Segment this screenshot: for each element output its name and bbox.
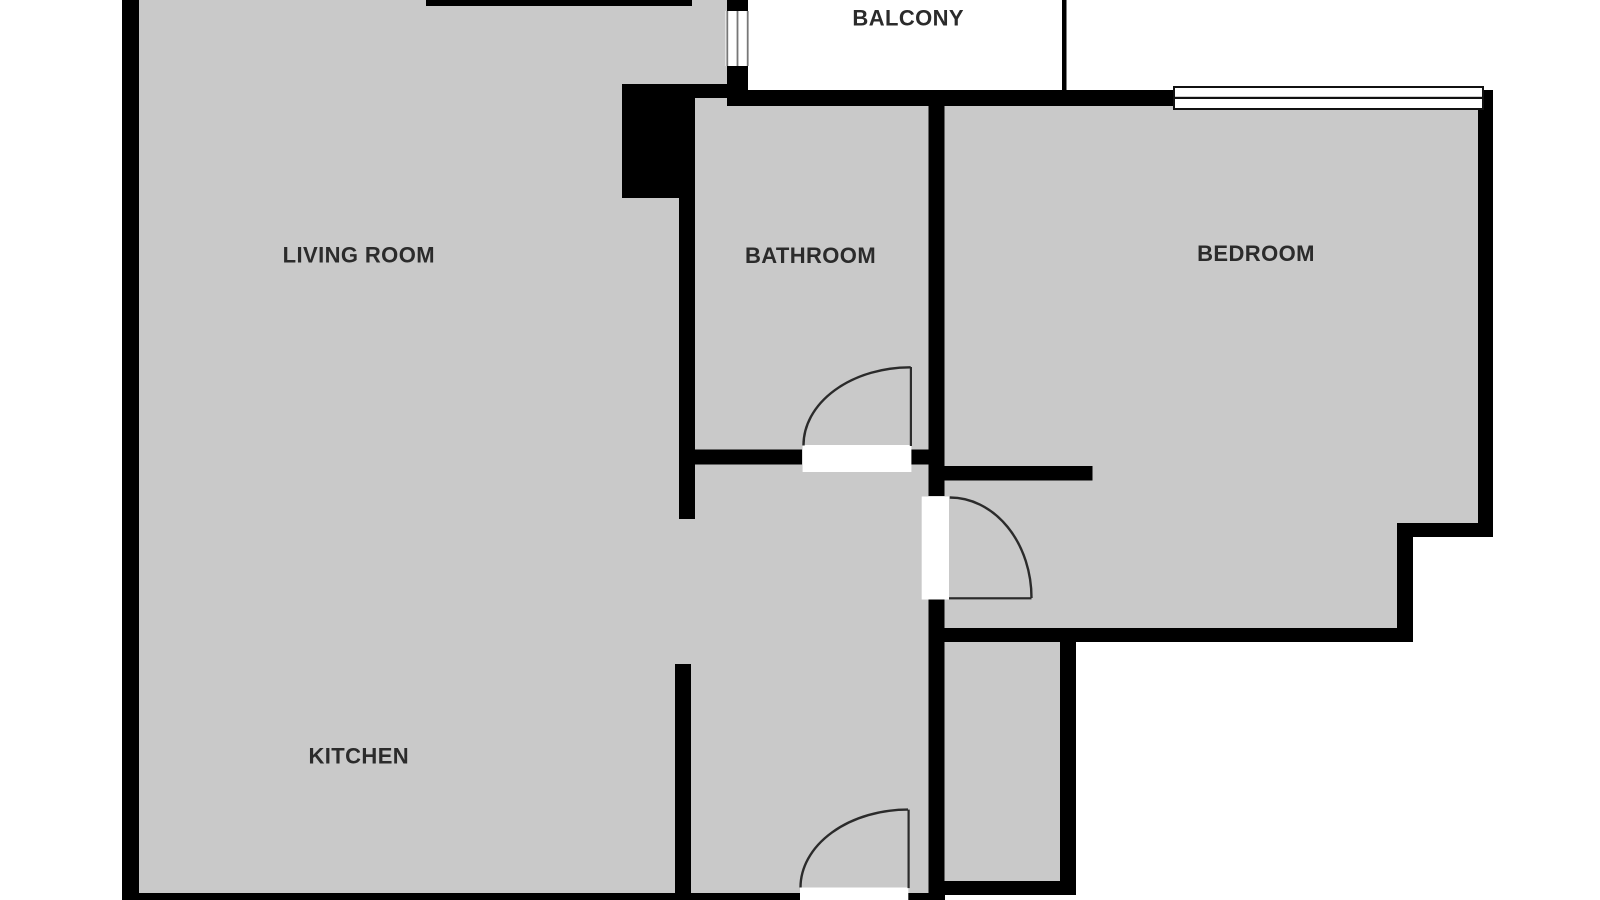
svg-text:BEDROOM: BEDROOM [1197,241,1315,266]
svg-text:BALCONY: BALCONY [852,5,964,30]
svg-text:KITCHEN: KITCHEN [309,744,410,769]
svg-text:LIVING ROOM: LIVING ROOM [283,243,435,268]
svg-text:BATHROOM: BATHROOM [745,243,876,268]
